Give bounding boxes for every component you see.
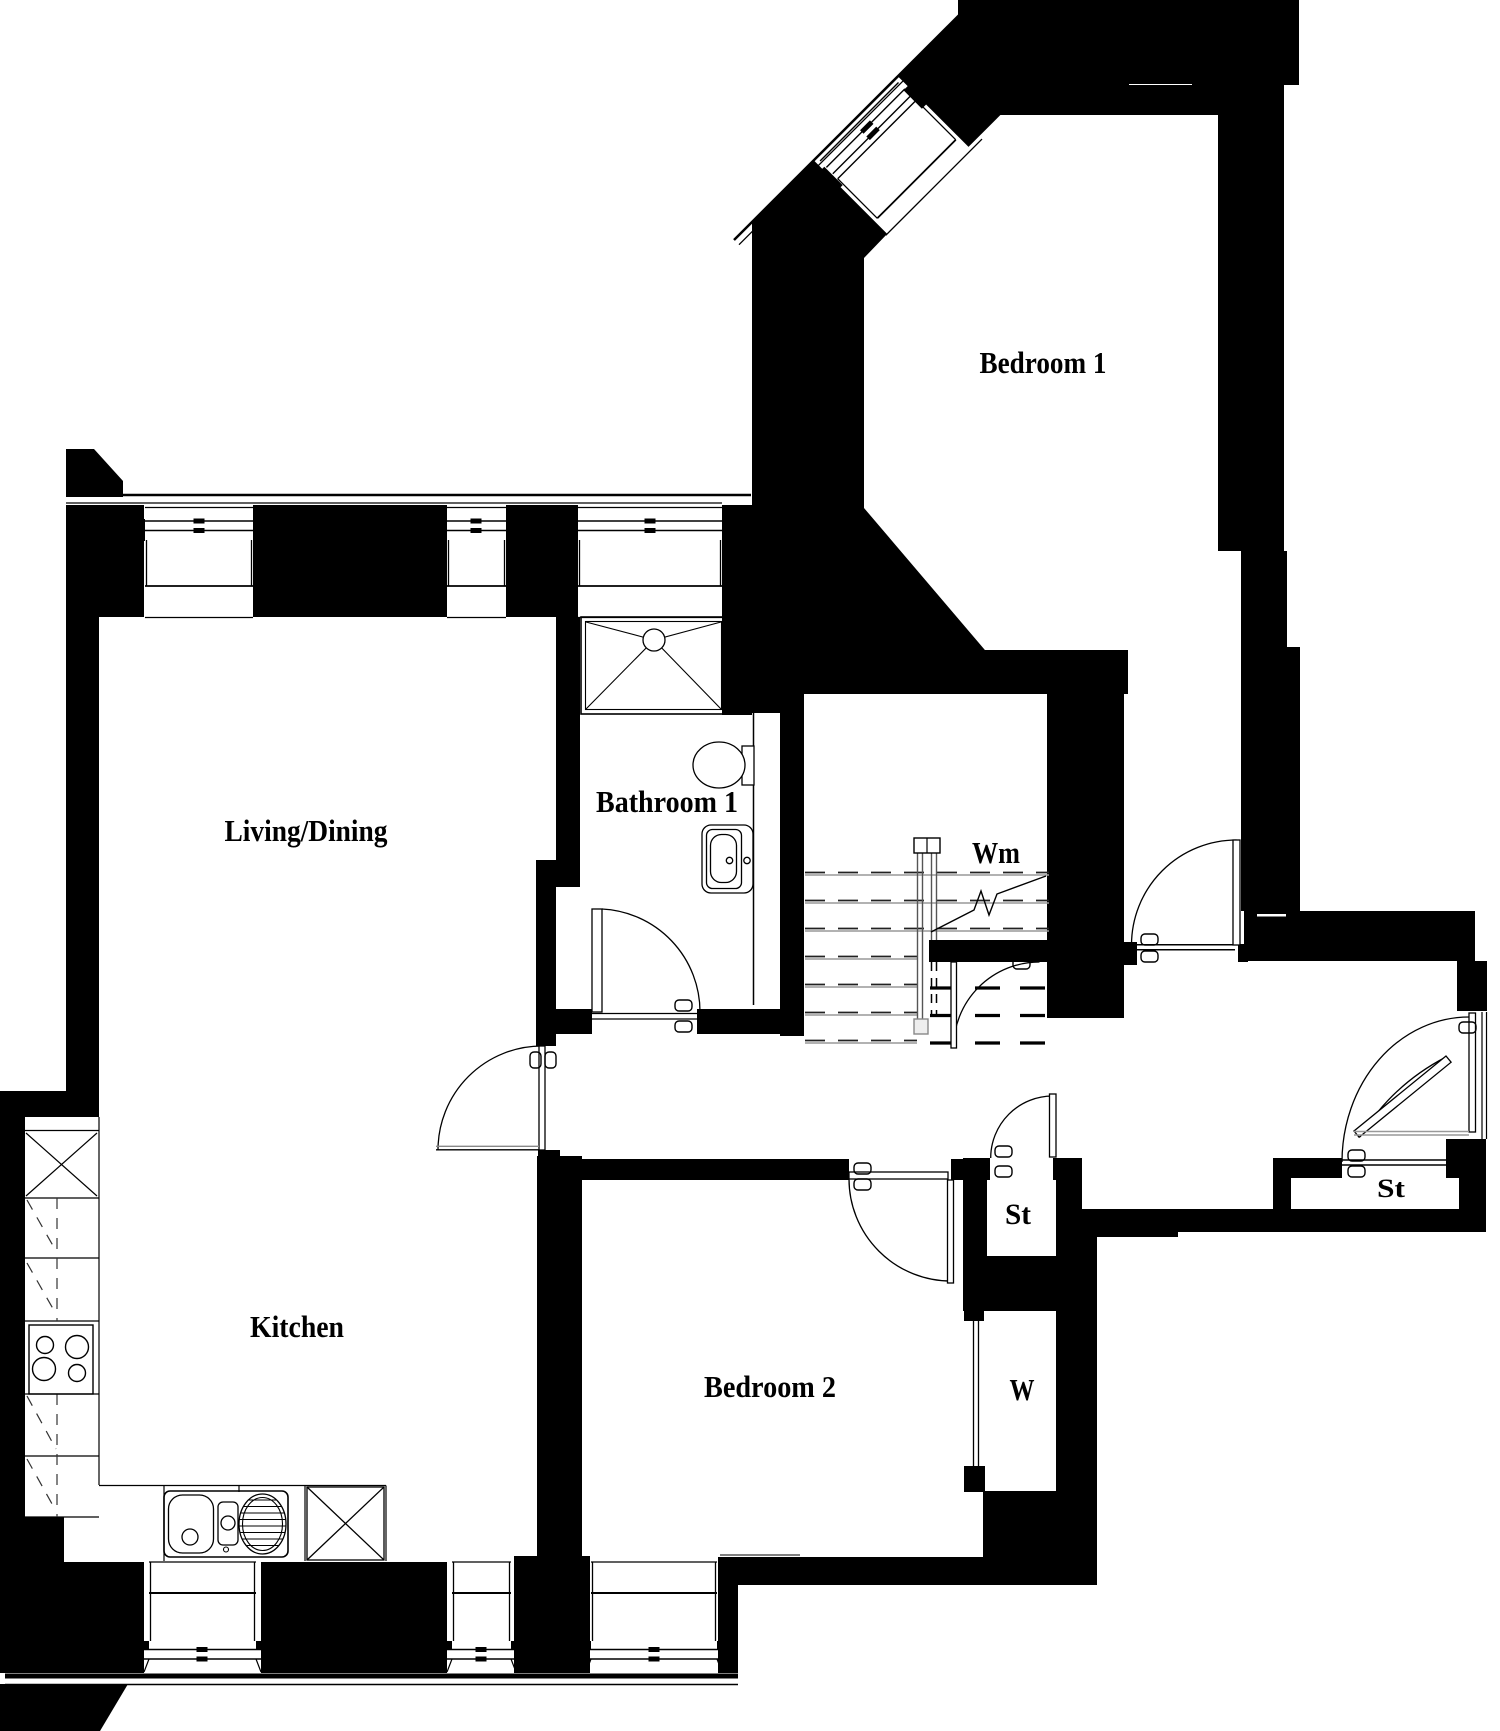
- svg-text:Bedroom 1: Bedroom 1: [980, 345, 1107, 380]
- svg-text:W: W: [1010, 1372, 1035, 1407]
- svg-text:Wm: Wm: [972, 835, 1020, 870]
- svg-text:St: St: [1005, 1198, 1031, 1231]
- svg-text:Bathroom 1: Bathroom 1: [596, 784, 738, 819]
- svg-text:Living/Dining: Living/Dining: [225, 813, 388, 848]
- svg-text:Kitchen: Kitchen: [250, 1309, 344, 1344]
- svg-text:Bedroom 2: Bedroom 2: [704, 1369, 836, 1404]
- svg-text:St: St: [1377, 1174, 1405, 1203]
